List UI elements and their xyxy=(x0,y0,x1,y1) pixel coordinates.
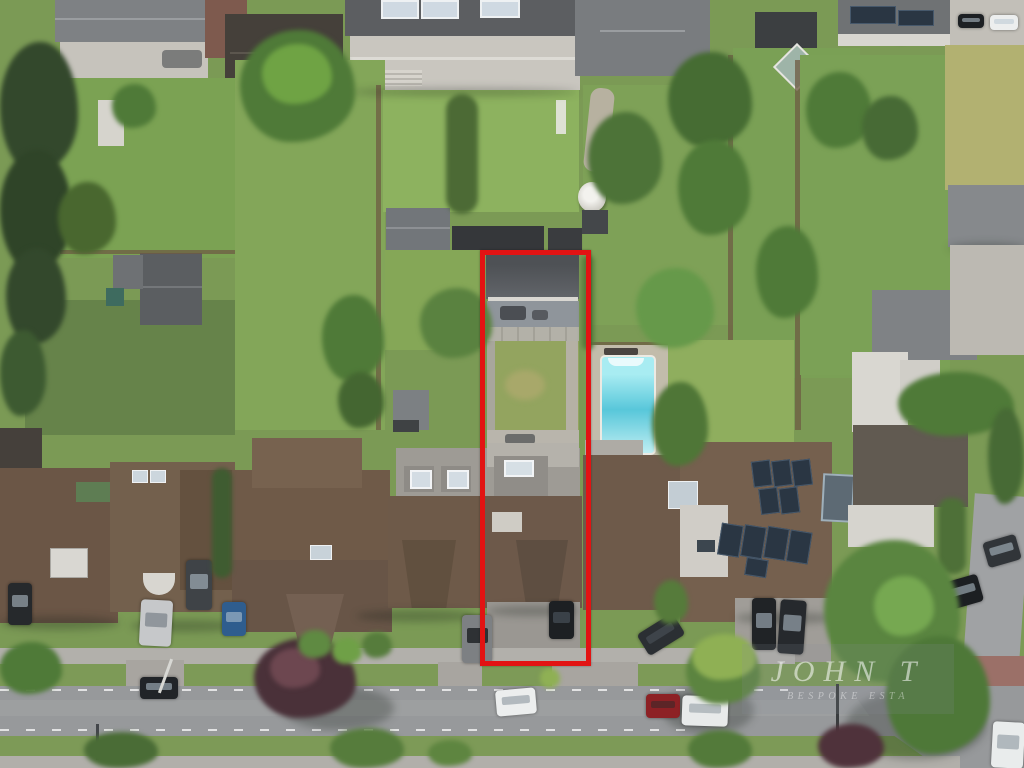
bush xyxy=(540,668,560,688)
paved-yard xyxy=(950,245,1024,355)
verge-bush xyxy=(428,740,472,766)
dry-lawn xyxy=(945,45,1024,190)
ladder-on-lawn xyxy=(556,100,566,134)
skylight xyxy=(150,470,166,483)
tree xyxy=(862,96,918,160)
tree xyxy=(636,268,714,348)
conservatory-pyramid xyxy=(421,0,459,19)
hedge xyxy=(212,468,232,578)
aerial-photo: JOHN T BESPOKE ESTA xyxy=(0,0,1024,768)
solar-panel-array xyxy=(850,6,896,24)
hedge-ball xyxy=(362,632,392,658)
parked-car xyxy=(958,14,984,28)
lawn xyxy=(383,90,579,212)
tree xyxy=(652,382,708,466)
corner-car-white xyxy=(991,721,1024,768)
tree xyxy=(322,295,384,381)
skylight xyxy=(310,545,332,560)
tree xyxy=(668,52,752,147)
conservatory-pyramid xyxy=(381,0,419,19)
roof-hip-ridge xyxy=(600,30,685,32)
property-boundary-outline xyxy=(480,250,591,666)
eave-shadow xyxy=(356,610,476,622)
street-car-red xyxy=(646,694,680,718)
tree-highlight xyxy=(262,44,332,104)
skylight xyxy=(132,470,148,483)
house-roof xyxy=(853,425,968,507)
bush xyxy=(654,580,688,624)
roof-panel-line xyxy=(55,18,205,20)
house-wall xyxy=(838,34,954,46)
roof-upper-hip xyxy=(252,438,362,488)
garden-fence xyxy=(376,85,381,430)
dormer-skylight xyxy=(410,470,432,489)
driveway-crossing xyxy=(438,662,482,688)
verge-tree xyxy=(330,728,404,768)
parked-car xyxy=(139,599,173,647)
garden-furniture xyxy=(162,50,202,68)
hedge-strip xyxy=(446,94,478,214)
tree xyxy=(0,330,46,416)
parked-car xyxy=(990,15,1018,30)
conifer-tree xyxy=(6,248,66,344)
garden-box xyxy=(106,288,124,306)
hedge-ball xyxy=(298,630,332,658)
shed-dark-side xyxy=(393,420,419,432)
garage-ridge xyxy=(140,286,202,288)
parked-car xyxy=(222,602,246,636)
dormer-skylight xyxy=(447,470,469,489)
verge-tree xyxy=(688,730,752,768)
verge-tree xyxy=(84,732,158,768)
outbuilding-ridge xyxy=(386,227,450,229)
tree xyxy=(588,112,662,204)
garden-outbuilding-roof xyxy=(386,208,450,250)
hedge xyxy=(938,498,966,574)
watermark-title: JOHN T xyxy=(771,657,926,687)
street-car-white xyxy=(495,687,537,716)
parked-car xyxy=(752,598,776,650)
green-shed-roof xyxy=(76,482,110,502)
garage-roof xyxy=(140,253,202,325)
tree xyxy=(678,140,750,235)
pool-steps xyxy=(608,358,644,366)
agency-watermark: JOHN T BESPOKE ESTA xyxy=(742,644,954,714)
bush xyxy=(112,84,156,128)
tree xyxy=(988,408,1024,504)
solar-panel-array xyxy=(751,455,817,518)
hedge-ball xyxy=(332,638,362,664)
parked-car xyxy=(8,583,32,625)
bush xyxy=(58,182,116,254)
parked-car xyxy=(186,560,212,610)
purple-tree xyxy=(818,724,884,768)
skylight-dark xyxy=(697,540,715,552)
roof xyxy=(55,0,205,42)
sun-loungers xyxy=(604,348,638,355)
garage-roof xyxy=(948,185,1024,247)
garden-shed xyxy=(582,210,608,234)
road-edge-line xyxy=(0,689,788,691)
tree xyxy=(338,372,384,428)
conservatory-pyramid xyxy=(480,0,520,18)
verge-tree xyxy=(0,642,62,694)
solar-panel-array xyxy=(898,10,934,26)
watermark-subtitle: BESPOKE ESTA xyxy=(787,691,909,702)
tree xyxy=(756,226,818,318)
upper-verge xyxy=(0,664,795,688)
tree-highlight xyxy=(874,576,934,636)
dormer xyxy=(50,548,88,578)
garden-shed xyxy=(755,12,817,48)
lean-to-roof xyxy=(113,255,143,289)
